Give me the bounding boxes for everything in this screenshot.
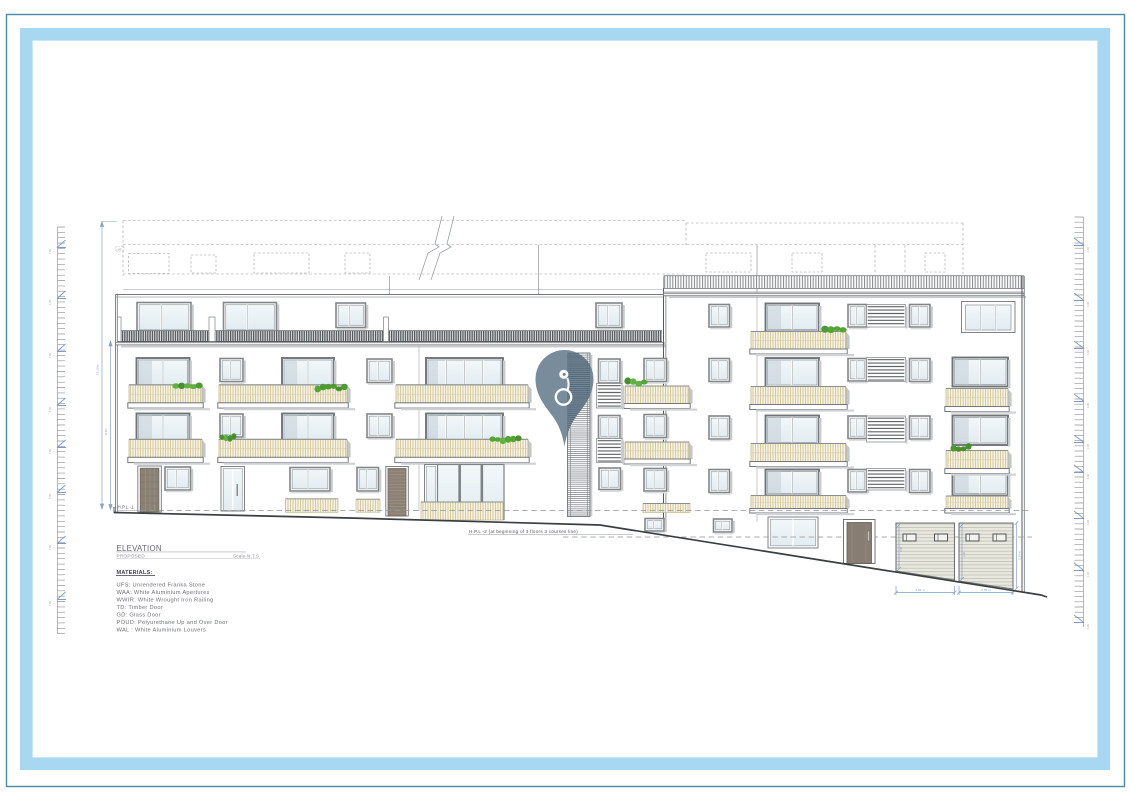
svg-text:1.00: 1.00 [48,600,52,606]
svg-text:1.00: 1.00 [48,299,52,305]
svg-text:1.00: 1.00 [1086,443,1090,449]
svg-text:1.00: 1.00 [1086,402,1090,408]
svg-text:WAA: White Aluminium Apertures: WAA: White Aluminium Apertures [117,590,210,596]
svg-text:1.00: 1.00 [48,406,52,412]
svg-text:1.00: 1.00 [48,448,52,454]
svg-text:WWIR: White Wrought Iron Raili: WWIR: White Wrought Iron Railing [117,598,214,604]
svg-text:GD: Glass Door: GD: Glass Door [117,613,161,619]
svg-text:PROPOSED: PROPOSED [117,553,146,558]
svg-text:1.00: 1.00 [1086,623,1090,629]
svg-text:WAL : White Aluminium Louvers: WAL : White Aluminium Louvers [117,628,207,634]
svg-text:12.15m: 12.15m [96,364,100,375]
svg-text:MATERIALS:: MATERIALS: [117,570,153,576]
svg-text:2.69 m: 2.69 m [981,588,991,592]
svg-text:UFS: Unrendered Franka Stone: UFS: Unrendered Franka Stone [117,583,206,589]
svg-text:2.40: 2.40 [899,546,903,552]
svg-text:2.40: 2.40 [962,551,966,557]
svg-text:1.00: 1.00 [1086,519,1090,525]
svg-text:2.94 m: 2.94 m [915,588,925,592]
svg-text:1.00: 1.00 [1086,349,1090,355]
svg-text:2.38 m: 2.38 m [1017,550,1021,560]
svg-text:1.00: 1.00 [48,248,52,254]
svg-text:1.00: 1.00 [48,352,52,358]
svg-text:H.P.L -1: H.P.L -1 [118,504,135,509]
svg-text:LMR: LMR [116,247,122,251]
svg-text:Scale N.T.S: Scale N.T.S [233,553,259,558]
svg-text:1.00: 1.00 [1086,246,1090,252]
svg-text:8.4m: 8.4m [104,428,108,435]
svg-text:1.00: 1.00 [48,544,52,550]
svg-text:1.00: 1.00 [1086,473,1090,479]
svg-text:1.00: 1.00 [1086,301,1090,307]
svg-text:H.P.L -2 (at beginning of 3 fl: H.P.L -2 (at beginning of 3 floors 3 cou… [469,529,578,534]
svg-text:1.00: 1.00 [1086,571,1090,577]
svg-text:TD: Timber Door: TD: Timber Door [117,605,164,611]
svg-text:POUD: Polyurethane Up and Over: POUD: Polyurethane Up and Over Door [117,620,228,626]
svg-text:1.00: 1.00 [48,493,52,499]
